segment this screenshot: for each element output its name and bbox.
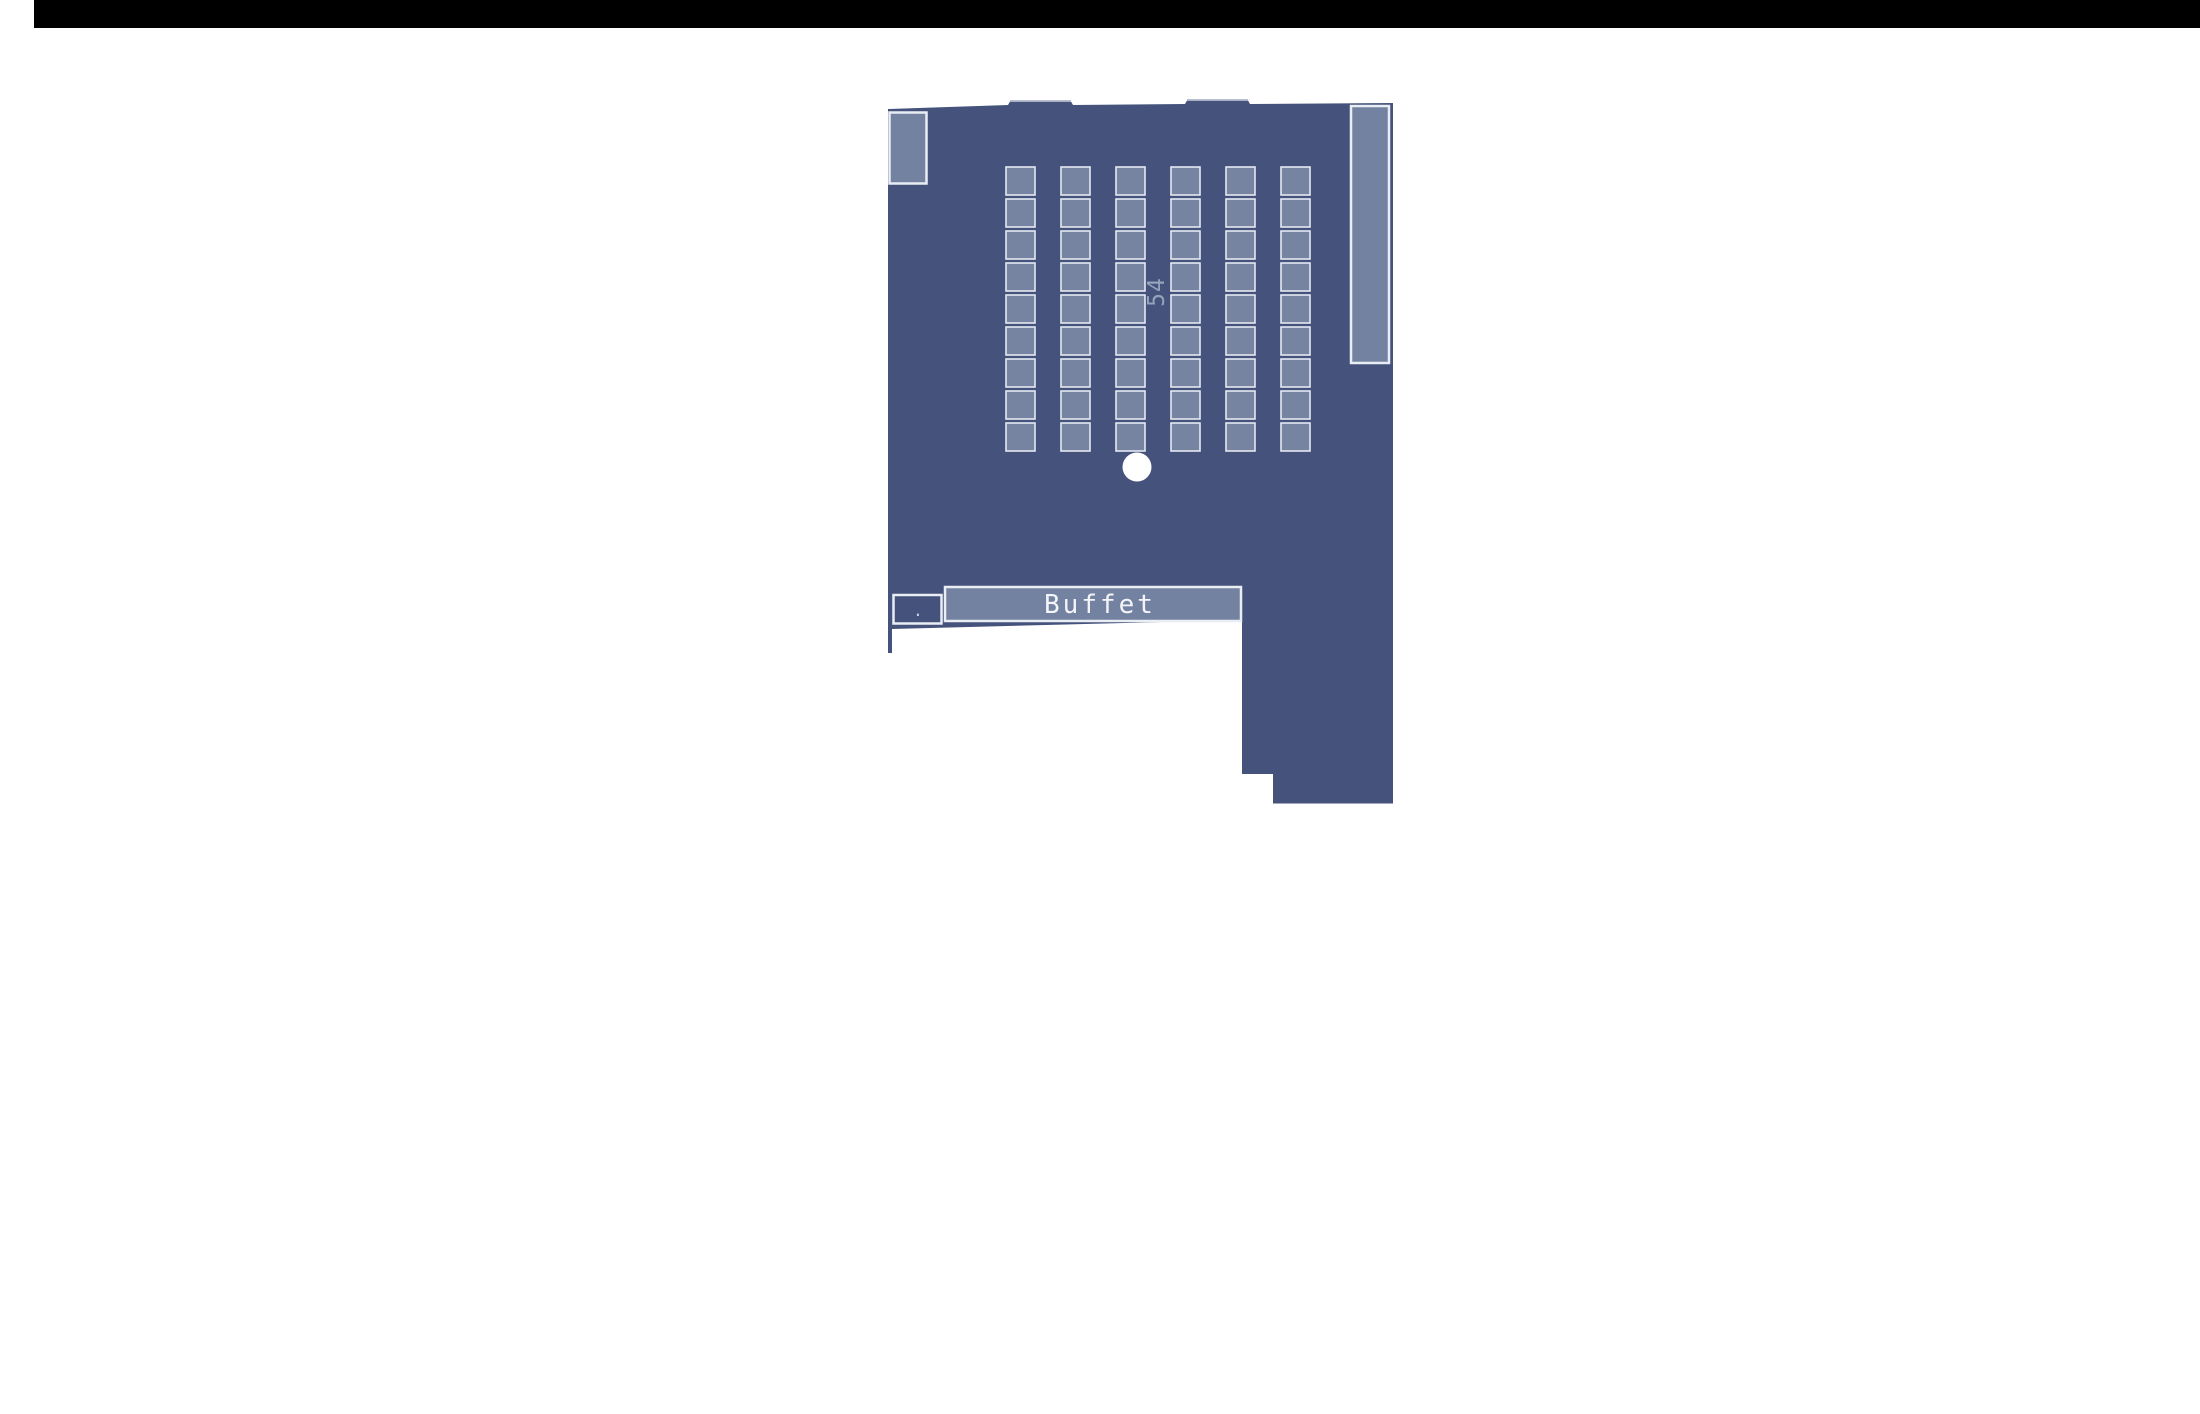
seat[interactable] [1061, 231, 1090, 259]
seat[interactable] [1116, 359, 1145, 387]
pillar-marker[interactable] [1123, 453, 1152, 482]
seat[interactable] [1171, 359, 1200, 387]
seat[interactable] [1281, 199, 1310, 227]
seat[interactable] [1171, 327, 1200, 355]
seat[interactable] [1061, 391, 1090, 419]
seat[interactable] [1226, 263, 1255, 291]
seat[interactable] [1171, 231, 1200, 259]
seat[interactable] [1116, 295, 1145, 323]
seat-count-label: 54 [1144, 277, 1170, 307]
seat[interactable] [1281, 327, 1310, 355]
cabinet-dot-label: . [913, 601, 923, 620]
seat[interactable] [1061, 327, 1090, 355]
seat[interactable] [1226, 423, 1255, 451]
seat[interactable] [1281, 295, 1310, 323]
seat[interactable] [1116, 263, 1145, 291]
page-canvas: 54 . Buffet [0, 0, 2200, 1414]
seat[interactable] [1171, 263, 1200, 291]
seat[interactable] [1006, 359, 1035, 387]
buffet-label: Buffet [1044, 590, 1156, 620]
seat[interactable] [1116, 423, 1145, 451]
seat[interactable] [1006, 295, 1035, 323]
seat[interactable] [1226, 295, 1255, 323]
seat[interactable] [1171, 199, 1200, 227]
seat[interactable] [1226, 199, 1255, 227]
seat[interactable] [1116, 327, 1145, 355]
seat[interactable] [1281, 167, 1310, 195]
table-top-left[interactable] [890, 113, 927, 184]
seat[interactable] [1226, 231, 1255, 259]
seat[interactable] [1061, 295, 1090, 323]
seat[interactable] [1171, 423, 1200, 451]
seat[interactable] [1006, 327, 1035, 355]
seat[interactable] [1281, 231, 1310, 259]
seat[interactable] [1171, 167, 1200, 195]
seat[interactable] [1281, 263, 1310, 291]
seat[interactable] [1171, 295, 1200, 323]
seat[interactable] [1226, 167, 1255, 195]
seat[interactable] [1281, 391, 1310, 419]
seat[interactable] [1226, 391, 1255, 419]
seat[interactable] [1006, 423, 1035, 451]
seat[interactable] [1116, 231, 1145, 259]
seat[interactable] [1116, 167, 1145, 195]
seat[interactable] [1171, 391, 1200, 419]
seat[interactable] [1061, 167, 1090, 195]
seat[interactable] [1006, 167, 1035, 195]
seat[interactable] [1006, 391, 1035, 419]
seat[interactable] [1061, 263, 1090, 291]
seat[interactable] [1006, 231, 1035, 259]
seat[interactable] [1006, 263, 1035, 291]
table-right-long[interactable] [1351, 106, 1389, 363]
seat[interactable] [1061, 423, 1090, 451]
seat[interactable] [1061, 359, 1090, 387]
seat[interactable] [1061, 199, 1090, 227]
seat[interactable] [1116, 391, 1145, 419]
seat[interactable] [1281, 359, 1310, 387]
seat[interactable] [1226, 327, 1255, 355]
floor-plan: 54 . Buffet [0, 0, 2200, 1414]
seat[interactable] [1006, 199, 1035, 227]
seat[interactable] [1281, 423, 1310, 451]
wall-edge-highlight [1010, 100, 1248, 101]
seat[interactable] [1116, 199, 1145, 227]
seat[interactable] [1226, 359, 1255, 387]
